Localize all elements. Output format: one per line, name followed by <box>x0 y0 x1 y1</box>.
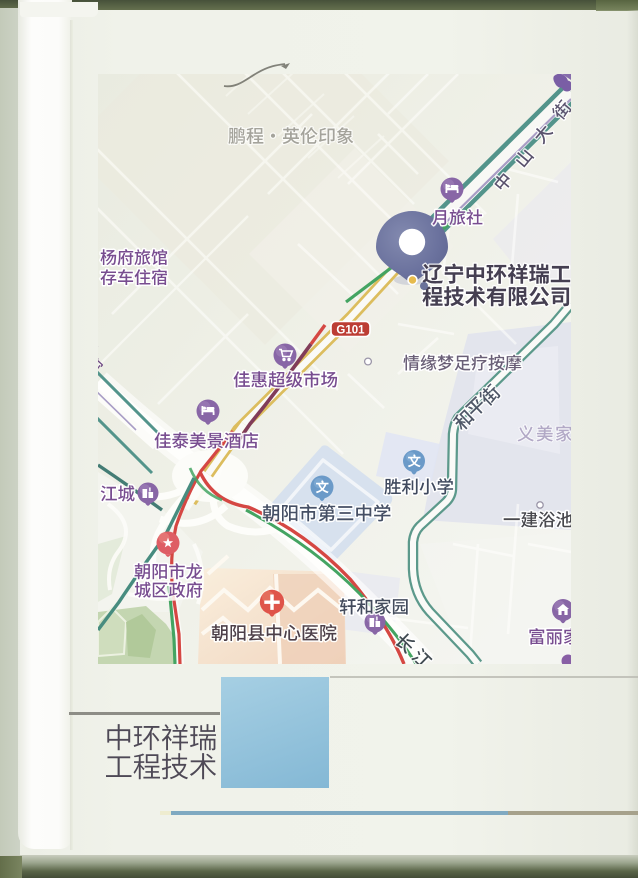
svg-text:G101: G101 <box>336 325 365 337</box>
